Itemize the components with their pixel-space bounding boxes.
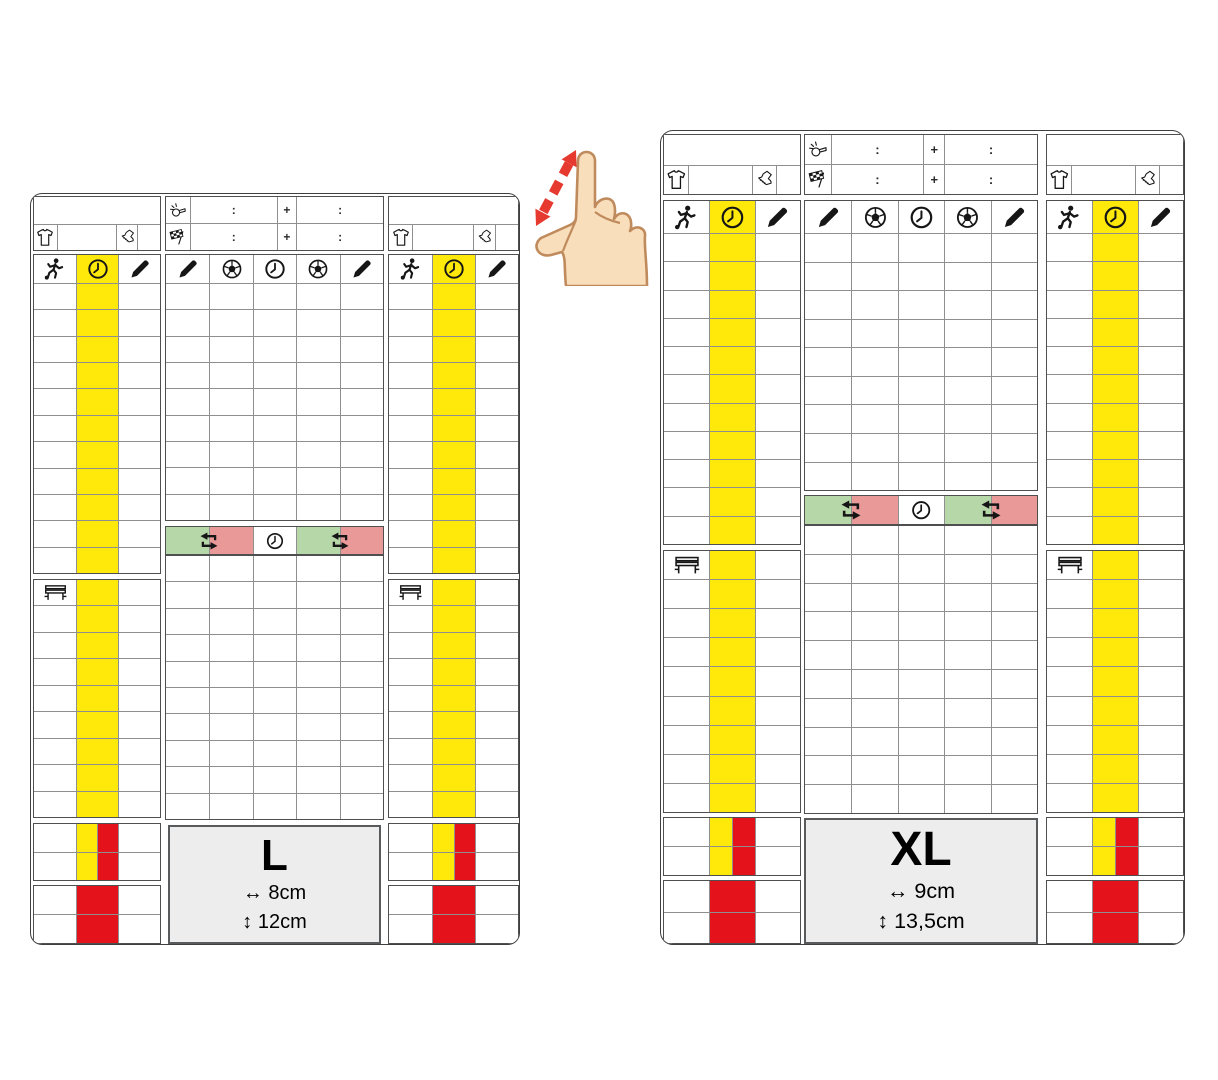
grid-cell bbox=[851, 377, 897, 405]
grid-row bbox=[1047, 290, 1183, 318]
grid-cell bbox=[898, 234, 944, 262]
grid-row bbox=[664, 725, 800, 754]
grid-row bbox=[664, 516, 800, 544]
grid-cell bbox=[253, 688, 296, 713]
time-cell bbox=[76, 580, 118, 605]
time-cell bbox=[432, 363, 475, 388]
grid-cell bbox=[389, 469, 432, 494]
grid-cell bbox=[253, 337, 296, 362]
red-card-cell bbox=[732, 847, 755, 875]
pencil-icon bbox=[1147, 204, 1174, 231]
ball-icon bbox=[954, 204, 981, 231]
grid-row bbox=[1047, 579, 1183, 608]
grid-cell bbox=[1047, 375, 1092, 402]
boot-icon bbox=[475, 228, 494, 247]
grid-row bbox=[389, 197, 518, 224]
grid-cell bbox=[34, 633, 76, 658]
grid-cell bbox=[118, 548, 160, 573]
grid-cell bbox=[340, 284, 383, 309]
grid-cell bbox=[166, 556, 209, 581]
grid-cell bbox=[1047, 432, 1092, 459]
red-card-cell bbox=[1092, 913, 1137, 944]
substitution-clock-cell bbox=[253, 527, 296, 554]
grid-row bbox=[34, 658, 160, 684]
grid-cell bbox=[851, 699, 897, 727]
team-panel-right bbox=[388, 194, 519, 944]
grid-cell bbox=[944, 584, 990, 612]
time-cell bbox=[432, 469, 475, 494]
grid-cell bbox=[991, 584, 1037, 612]
grid-row bbox=[389, 632, 518, 658]
grid-cell bbox=[475, 712, 518, 737]
time-cell bbox=[709, 404, 754, 431]
grid-cell bbox=[475, 824, 518, 852]
grid-row bbox=[664, 290, 800, 318]
grid-cell bbox=[209, 662, 252, 687]
spare-cell bbox=[1159, 166, 1183, 194]
grid-cell bbox=[1138, 375, 1183, 402]
grid-cell bbox=[118, 495, 160, 520]
grid-cell bbox=[340, 337, 383, 362]
grid-cell bbox=[755, 201, 800, 233]
grid-row bbox=[1047, 912, 1183, 944]
grid-cell bbox=[805, 291, 851, 319]
grid-cell bbox=[1047, 726, 1092, 754]
grid-cell bbox=[851, 641, 897, 669]
bench-table bbox=[388, 579, 519, 818]
grid-cell bbox=[664, 234, 709, 261]
red-card-cell bbox=[454, 853, 476, 881]
substitution-row bbox=[165, 526, 384, 555]
extra-time-plus-cell: + bbox=[923, 165, 944, 194]
grid-cell bbox=[166, 495, 209, 520]
grid-cell bbox=[755, 291, 800, 318]
grid-cell bbox=[340, 662, 383, 687]
grid-cell bbox=[118, 416, 160, 441]
grid-row bbox=[389, 336, 518, 362]
grid-cell bbox=[34, 310, 76, 335]
grid-cell bbox=[118, 310, 160, 335]
grid-cell bbox=[851, 728, 897, 756]
grid-cell bbox=[898, 377, 944, 405]
grid-row bbox=[34, 547, 160, 573]
time-cell bbox=[1092, 638, 1137, 666]
time-cell bbox=[432, 633, 475, 658]
grid-cell bbox=[664, 347, 709, 374]
grid-row bbox=[166, 388, 383, 414]
grid-cell bbox=[475, 792, 518, 817]
grid-cell bbox=[209, 556, 252, 581]
grid-row bbox=[389, 283, 518, 309]
grid-cell bbox=[755, 580, 800, 608]
grid-cell bbox=[805, 584, 851, 612]
grid-cell bbox=[1047, 347, 1092, 374]
spare-cell bbox=[137, 225, 160, 250]
scorecard-l: :+::+:L↔ 8cm↕ 12cm bbox=[30, 193, 520, 945]
grid-cell bbox=[118, 886, 160, 914]
grid-row bbox=[805, 404, 1037, 433]
time-cell bbox=[1092, 234, 1137, 261]
grid-cell bbox=[34, 915, 76, 943]
shirt-icon bbox=[390, 227, 412, 249]
grid-cell bbox=[755, 347, 800, 374]
grid-cell bbox=[118, 915, 160, 943]
grid-cell bbox=[1047, 135, 1183, 165]
grid-cell bbox=[296, 310, 339, 335]
grid-row bbox=[389, 685, 518, 711]
score-table-lower bbox=[165, 555, 384, 820]
grid-cell bbox=[991, 320, 1037, 348]
score-panel: :+::+:XL↔ 9cm↕ 13,5cm bbox=[804, 131, 1038, 944]
grid-cell bbox=[898, 785, 944, 813]
grid-cell bbox=[166, 714, 209, 739]
yellow-card-cell bbox=[709, 847, 732, 875]
grid-row bbox=[805, 376, 1037, 405]
clock-icon bbox=[719, 204, 746, 231]
grid-row bbox=[1047, 666, 1183, 695]
grid-cell bbox=[991, 728, 1037, 756]
grid-cell bbox=[389, 442, 432, 467]
grid-cell bbox=[805, 785, 851, 813]
grid-cell bbox=[118, 824, 160, 852]
time-colon-cell: : bbox=[944, 165, 1037, 194]
grid-cell bbox=[1047, 291, 1092, 318]
grid-cell bbox=[944, 234, 990, 262]
grid-cell bbox=[944, 756, 990, 784]
grid-cell bbox=[898, 263, 944, 291]
time-cell bbox=[1092, 697, 1137, 725]
grid-cell bbox=[34, 792, 76, 817]
pinch-hand-icon bbox=[536, 152, 647, 286]
score-table-upper bbox=[165, 254, 384, 521]
grid-cell bbox=[1047, 609, 1092, 637]
clock-icon bbox=[265, 531, 285, 551]
grid-cell bbox=[296, 556, 339, 581]
grid-cell bbox=[1047, 580, 1092, 608]
team-boot-cell bbox=[752, 166, 775, 194]
grid-cell bbox=[664, 319, 709, 346]
grid-cell bbox=[1138, 726, 1183, 754]
grid-cell bbox=[34, 469, 76, 494]
match-time-header: :+::+: bbox=[804, 134, 1038, 195]
grid-cell bbox=[209, 416, 252, 441]
grid-cell bbox=[991, 670, 1037, 698]
grid-cell bbox=[755, 551, 800, 579]
grid-cell bbox=[664, 638, 709, 666]
time-cell bbox=[76, 659, 118, 684]
grid-cell bbox=[118, 686, 160, 711]
grid-cell bbox=[664, 404, 709, 431]
grid-row bbox=[34, 914, 160, 943]
grid-row bbox=[34, 415, 160, 441]
time-cell bbox=[709, 234, 754, 261]
team-name-cell bbox=[412, 225, 473, 250]
grid-cell bbox=[851, 526, 897, 554]
grid-cell bbox=[991, 434, 1037, 462]
grid-cell bbox=[166, 582, 209, 607]
pencil-icon bbox=[1001, 204, 1028, 231]
time-cell bbox=[76, 363, 118, 388]
grid-cell bbox=[1138, 609, 1183, 637]
size-label: XL bbox=[890, 825, 951, 875]
grid-cell bbox=[296, 662, 339, 687]
grid-cell bbox=[664, 697, 709, 725]
grid-cell bbox=[296, 416, 339, 441]
grid-cell bbox=[805, 699, 851, 727]
grid-cell bbox=[944, 201, 990, 233]
grid-cell bbox=[389, 886, 432, 914]
grid-row bbox=[1047, 261, 1183, 289]
grid-cell bbox=[755, 517, 800, 544]
time-cell bbox=[76, 310, 118, 335]
grid-row bbox=[1047, 696, 1183, 725]
time-cell bbox=[709, 697, 754, 725]
grid-cell bbox=[805, 320, 851, 348]
grid-row bbox=[1047, 135, 1183, 165]
red-card-cell bbox=[432, 915, 475, 943]
grid-cell bbox=[1138, 551, 1183, 579]
grid-cell bbox=[851, 463, 897, 491]
grid-row bbox=[805, 262, 1037, 291]
grid-cell bbox=[34, 363, 76, 388]
flag-icon bbox=[808, 169, 828, 189]
grid-cell bbox=[664, 488, 709, 515]
grid-cell bbox=[253, 582, 296, 607]
grid-cell bbox=[166, 794, 209, 819]
height-dimension: ↕ 13,5cm bbox=[877, 906, 964, 937]
grid-cell bbox=[851, 291, 897, 319]
grid-cell bbox=[1138, 488, 1183, 515]
yellow-card-cell bbox=[76, 824, 97, 852]
time-cell bbox=[1092, 551, 1137, 579]
grid-cell bbox=[340, 714, 383, 739]
bench-header-cell bbox=[664, 551, 709, 579]
grid-cell bbox=[389, 495, 432, 520]
grid-cell bbox=[34, 255, 76, 283]
grid-cell bbox=[944, 263, 990, 291]
grid-cell bbox=[851, 201, 897, 233]
grid-cell bbox=[944, 785, 990, 813]
pencil-icon bbox=[350, 257, 374, 281]
grid-cell bbox=[475, 363, 518, 388]
grid-cell bbox=[944, 670, 990, 698]
grid-row bbox=[166, 415, 383, 441]
grid-cell bbox=[805, 641, 851, 669]
grid-cell bbox=[166, 389, 209, 414]
time-cell bbox=[76, 739, 118, 764]
grid-row bbox=[34, 632, 160, 658]
grid-cell bbox=[898, 526, 944, 554]
grid-row bbox=[664, 881, 800, 912]
grid-cell bbox=[389, 521, 432, 546]
grid-cell bbox=[1047, 881, 1092, 912]
player-icon bbox=[43, 257, 67, 281]
grid-cell bbox=[34, 197, 160, 224]
grid-cell bbox=[851, 234, 897, 262]
grid-cell bbox=[664, 667, 709, 695]
grid-cell bbox=[664, 881, 709, 912]
pencil-icon bbox=[128, 257, 152, 281]
grid-cell bbox=[389, 824, 432, 852]
clock-icon bbox=[263, 257, 287, 281]
time-cell bbox=[432, 442, 475, 467]
yellow-card-cell bbox=[432, 824, 454, 852]
grid-row bbox=[34, 224, 160, 250]
grid-row bbox=[1047, 881, 1183, 912]
grid-row: :+: bbox=[166, 223, 383, 250]
grid-cell bbox=[898, 584, 944, 612]
grid-row bbox=[34, 468, 160, 494]
grid-cell bbox=[34, 686, 76, 711]
grid-cell bbox=[755, 697, 800, 725]
grid-cell bbox=[1138, 580, 1183, 608]
size-info-box: L↔ 8cm↕ 12cm bbox=[168, 825, 381, 944]
grid-cell bbox=[340, 556, 383, 581]
grid-cell bbox=[1047, 913, 1092, 944]
grid-cell bbox=[944, 434, 990, 462]
time-cell bbox=[432, 739, 475, 764]
grid-cell bbox=[118, 659, 160, 684]
clock-icon bbox=[442, 257, 466, 281]
grid-row bbox=[805, 640, 1037, 669]
substitution-row bbox=[804, 495, 1038, 525]
grid-row bbox=[389, 791, 518, 817]
grid-row bbox=[1047, 201, 1183, 233]
yellow-card-cell bbox=[76, 853, 97, 881]
grid-cell bbox=[296, 741, 339, 766]
grid-row bbox=[34, 309, 160, 335]
clock-icon bbox=[908, 204, 935, 231]
grid-cell bbox=[664, 166, 800, 194]
grid-cell bbox=[118, 389, 160, 414]
grid-cell bbox=[389, 686, 432, 711]
player-icon bbox=[673, 204, 700, 231]
width-dimension: ↔ 8cm bbox=[243, 879, 306, 907]
grid-row bbox=[166, 766, 383, 792]
grid-cell bbox=[389, 225, 518, 250]
grid-cell bbox=[898, 641, 944, 669]
grid-cell bbox=[1138, 291, 1183, 318]
grid-cell bbox=[389, 659, 432, 684]
substitution-clock-cell bbox=[898, 496, 944, 524]
grid-cell bbox=[664, 726, 709, 754]
red-card-cell bbox=[732, 818, 755, 846]
grid-cell bbox=[340, 495, 383, 520]
size-label: L bbox=[261, 833, 288, 879]
grid-cell bbox=[34, 886, 76, 914]
time-cell bbox=[1092, 347, 1137, 374]
grid-cell bbox=[664, 291, 709, 318]
time-cell bbox=[1092, 784, 1137, 812]
team-shirt-cell bbox=[34, 225, 57, 250]
grid-cell bbox=[851, 434, 897, 462]
time-cell bbox=[432, 389, 475, 414]
resize-arrow-icon bbox=[535, 150, 576, 226]
red-card-rows bbox=[1046, 880, 1184, 944]
grid-cell bbox=[475, 442, 518, 467]
grid-cell bbox=[1138, 201, 1183, 233]
grid-cell bbox=[389, 255, 432, 283]
bench-table bbox=[33, 579, 161, 818]
grid-cell bbox=[118, 606, 160, 631]
time-cell bbox=[1092, 432, 1137, 459]
grid-cell bbox=[118, 712, 160, 737]
grid-cell bbox=[755, 262, 800, 289]
grid-cell bbox=[166, 609, 209, 634]
grid-row bbox=[664, 233, 800, 261]
grid-cell bbox=[991, 526, 1037, 554]
grid-cell bbox=[118, 580, 160, 605]
bench-header-cell bbox=[389, 580, 432, 605]
grid-cell bbox=[991, 201, 1037, 233]
time-colon-cell: : bbox=[296, 224, 383, 250]
time-cell bbox=[709, 291, 754, 318]
pencil-icon bbox=[176, 257, 200, 281]
grid-cell bbox=[166, 662, 209, 687]
time-cell bbox=[76, 495, 118, 520]
grid-cell bbox=[851, 785, 897, 813]
grid-cell bbox=[340, 582, 383, 607]
team-shirt-cell bbox=[389, 225, 412, 250]
time-colon-cell: : bbox=[831, 165, 924, 194]
grid-cell bbox=[944, 291, 990, 319]
grid-row bbox=[1047, 233, 1183, 261]
grid-cell bbox=[340, 389, 383, 414]
grid-cell bbox=[389, 363, 432, 388]
time-cell bbox=[76, 712, 118, 737]
grid-cell bbox=[1138, 432, 1183, 459]
team-name-cell bbox=[688, 166, 752, 194]
time-cell bbox=[709, 667, 754, 695]
grid-cell bbox=[898, 405, 944, 433]
time-cell bbox=[1092, 580, 1137, 608]
grid-cell bbox=[296, 794, 339, 819]
grid-row bbox=[664, 579, 800, 608]
grid-row bbox=[1047, 637, 1183, 666]
grid-cell bbox=[253, 284, 296, 309]
grid-row bbox=[664, 783, 800, 812]
clock-icon bbox=[1102, 204, 1129, 231]
grid-cell bbox=[755, 234, 800, 261]
grid-cell bbox=[664, 609, 709, 637]
grid-cell bbox=[475, 739, 518, 764]
clock-header-cell bbox=[709, 201, 754, 233]
time-cell bbox=[709, 609, 754, 637]
grid-row bbox=[389, 468, 518, 494]
grid-row bbox=[166, 362, 383, 388]
grid-cell bbox=[991, 756, 1037, 784]
time-cell bbox=[709, 755, 754, 783]
grid-row bbox=[34, 441, 160, 467]
grid-cell bbox=[475, 548, 518, 573]
grid-cell bbox=[475, 255, 518, 283]
grid-cell bbox=[118, 337, 160, 362]
grid-cell bbox=[166, 363, 209, 388]
grid-row bbox=[664, 912, 800, 944]
roster-table bbox=[388, 254, 519, 574]
team-panel-right bbox=[1046, 131, 1184, 944]
grid-row bbox=[664, 346, 800, 374]
grid-row bbox=[34, 711, 160, 737]
grid-cell bbox=[1138, 319, 1183, 346]
ball-icon bbox=[220, 257, 244, 281]
grid-cell bbox=[253, 442, 296, 467]
grid-cell bbox=[1138, 881, 1183, 912]
grid-cell bbox=[34, 765, 76, 790]
grid-row bbox=[805, 698, 1037, 727]
grid-cell bbox=[1138, 784, 1183, 812]
grid-cell bbox=[209, 284, 252, 309]
